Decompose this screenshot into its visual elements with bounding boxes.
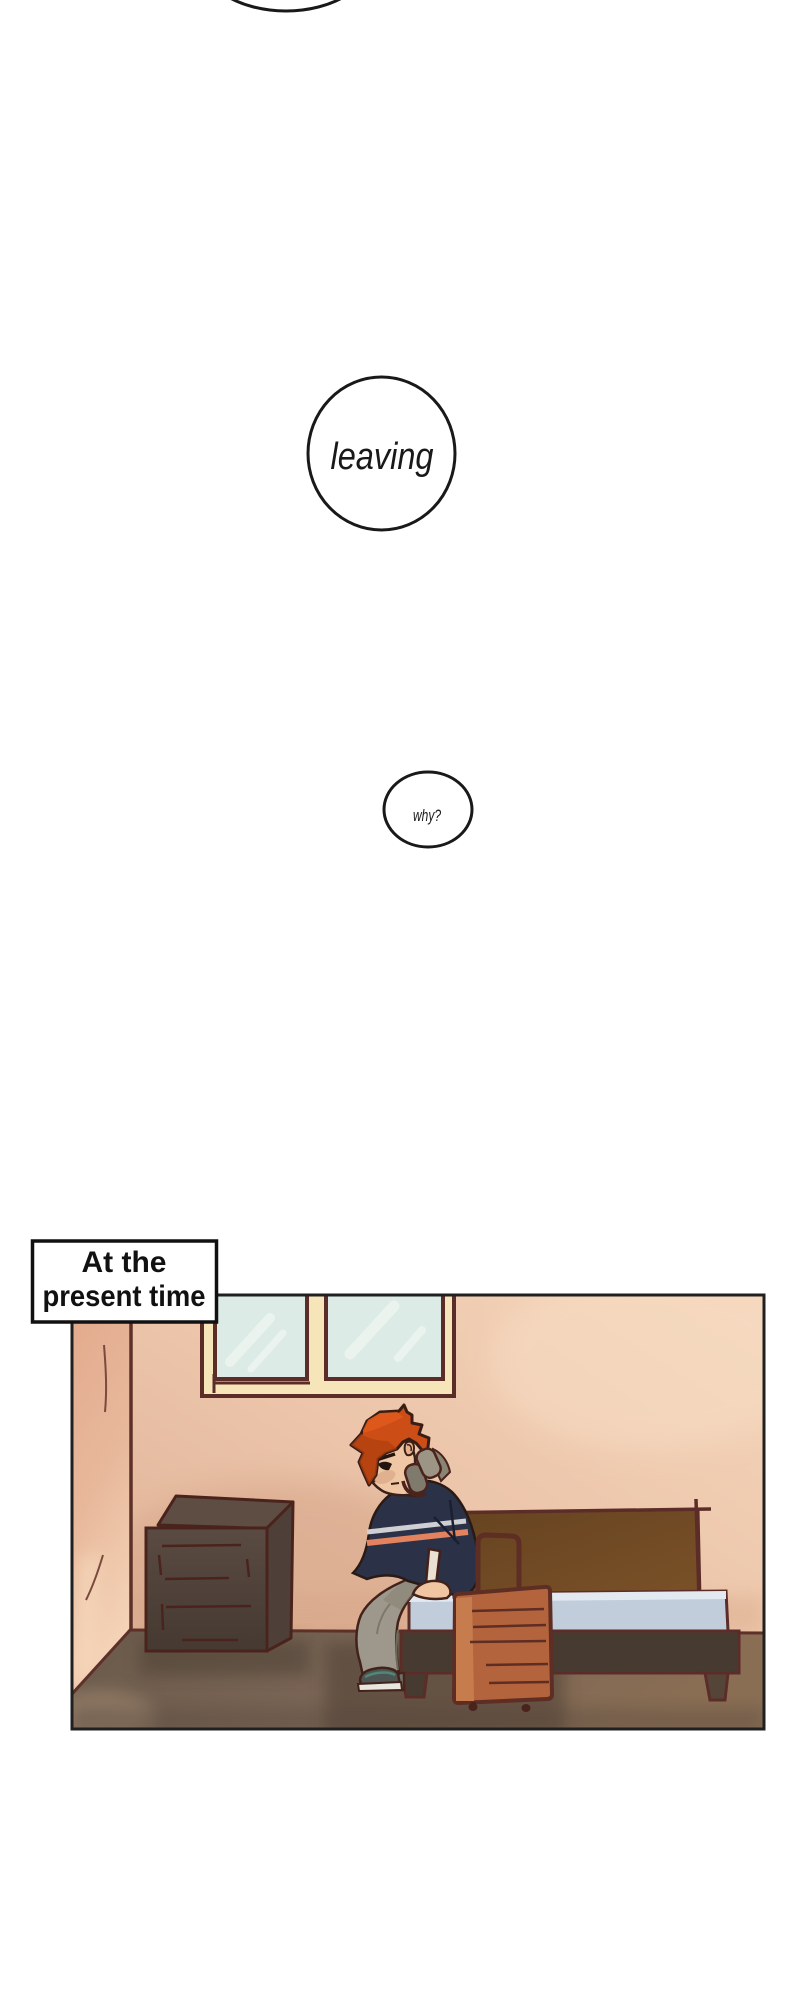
svg-text:present time: present time (43, 1280, 206, 1313)
svg-text:leaving: leaving (331, 436, 434, 478)
svg-text:At the: At the (82, 1246, 167, 1279)
svg-text:why?: why? (413, 806, 441, 825)
